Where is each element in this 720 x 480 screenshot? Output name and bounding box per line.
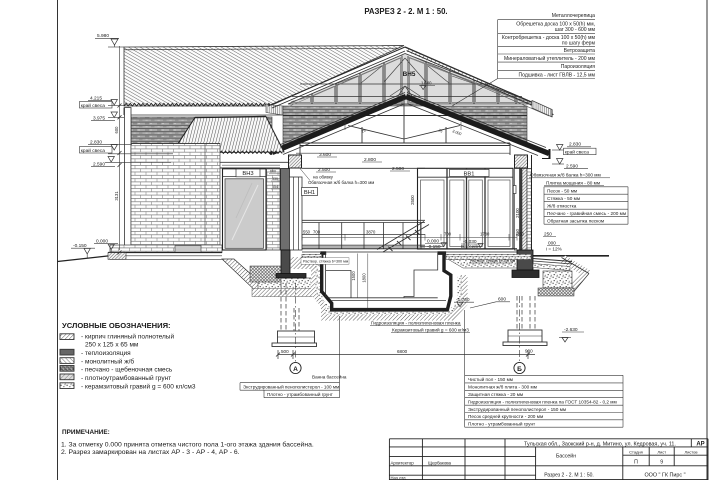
svg-text:1780: 1780	[480, 232, 490, 237]
svg-text:Ванна бассейна: Ванна бассейна	[312, 374, 347, 380]
svg-text:Металлочерепица: Металлочерепица	[552, 13, 595, 19]
svg-text:ВВ1: ВВ1	[464, 171, 475, 177]
svg-text:Гидроизоляция - полиэтиленовая: Гидроизоляция - полиэтиленовая пленка	[371, 321, 461, 326]
svg-text:Обратная засыпка песком: Обратная засыпка песком	[547, 218, 604, 223]
svg-text:1800: 1800	[362, 273, 367, 283]
svg-text:АР: АР	[696, 442, 704, 448]
svg-text:РАЗРЕЗ 2 - 2. М 1 : 50.: РАЗРЕЗ 2 - 2. М 1 : 50.	[364, 7, 447, 16]
svg-text:- керамзитовый гравий g = 600: - керамзитовый гравий g = 600 кл/см3	[81, 383, 196, 391]
svg-text:500: 500	[281, 349, 289, 354]
svg-text:600: 600	[270, 170, 276, 174]
svg-text:Чистый пол - 150 мм: Чистый пол - 150 мм	[468, 376, 513, 382]
svg-text:Разрез 2 - 2. М 1 : 50.: Разрез 2 - 2. М 1 : 50.	[544, 473, 594, 479]
svg-text:Гидроизоляция - полиэтиленовая: Гидроизоляция - полиэтиленовая пленка па…	[468, 399, 617, 404]
svg-text:ВН1: ВН1	[304, 190, 315, 196]
svg-text:330: 330	[272, 177, 278, 181]
svg-text:по шагу ферм: по шагу ферм	[562, 41, 596, 47]
svg-text:3131: 3131	[114, 191, 119, 201]
svg-text:Б: Б	[517, 366, 522, 373]
svg-text:Плотно - утрамбованный грунт: Плотно - утрамбованный грунт	[267, 391, 334, 397]
svg-text:шаг 300 - 600 мм: шаг 300 - 600 мм	[555, 27, 596, 33]
svg-text:Пароизоляция: Пароизоляция	[561, 64, 595, 70]
svg-text:700: 700	[313, 229, 321, 234]
svg-text:0.000: 0.000	[427, 239, 439, 245]
svg-text:2. Разрез замаркирован на лист: 2. Разрез замаркирован на листах АР - 3 …	[61, 449, 240, 456]
svg-text:Щербакова: Щербакова	[428, 460, 452, 465]
svg-text:250: 250	[544, 232, 552, 237]
svg-text:550: 550	[303, 229, 311, 234]
svg-text:Нач.отд.: Нач.отд.	[391, 475, 407, 480]
svg-text:700: 700	[444, 232, 452, 237]
svg-text:554: 554	[272, 185, 278, 189]
svg-text:край свеса: край свеса	[81, 147, 105, 154]
svg-text:9: 9	[660, 459, 663, 465]
svg-text:УСЛОВНЫЕ ОБОЗНАЧЕНИЯ:: УСЛОВНЫЕ ОБОЗНАЧЕНИЯ:	[62, 321, 171, 330]
svg-text:250: 250	[515, 228, 520, 236]
svg-text:Защитная стяжка - 20 мм: Защитная стяжка - 20 мм	[468, 392, 523, 397]
svg-text:ООО " ГК Пирс ": ООО " ГК Пирс "	[644, 472, 685, 478]
svg-text:2100: 2100	[515, 208, 520, 218]
svg-text:Стяжка - 50 мм: Стяжка - 50 мм	[547, 196, 580, 201]
svg-text:1. За отметку 0.000 принята от: 1. За отметку 0.000 принята отметка чист…	[61, 441, 314, 449]
svg-text:Бассейн: Бассейн	[556, 453, 576, 460]
svg-text:Обвязочная ж/б балка h=300 мм: Обвязочная ж/б балка h=300 мм	[308, 180, 374, 185]
svg-text:3870: 3870	[366, 229, 376, 234]
svg-text:Архитектор: Архитектор	[391, 460, 415, 465]
svg-text:i = 12%: i = 12%	[546, 247, 562, 252]
svg-text:6800: 6800	[397, 349, 408, 354]
svg-text:Обвязочная ж/б балка h=300 мм: Обвязочная ж/б балка h=300 мм	[530, 173, 601, 178]
svg-text:-0.150: -0.150	[427, 244, 441, 250]
svg-text:Экструдированный пенополистеро: Экструдированный пенополистерол - 100 мм	[243, 383, 339, 389]
svg-text:Тульская обл., Заокский р-н, д: Тульская обл., Заокский р-н, д. Митино, …	[524, 441, 676, 448]
svg-text:1.600: 1.600	[421, 81, 432, 86]
svg-text:на обивку: на обивку	[313, 175, 334, 180]
svg-text:1500: 1500	[351, 271, 356, 281]
svg-text:900: 900	[525, 349, 533, 354]
svg-text:Ветрозащита: Ветрозащита	[564, 48, 595, 54]
svg-text:- монолитный ж/б: - монолитный ж/б	[81, 357, 134, 365]
svg-text:Раствор. стяжка b=300 мм: Раствор. стяжка b=300 мм	[303, 260, 349, 264]
svg-text:Плотно - утрамбованный грунт: Плотно - утрамбованный грунт	[468, 421, 536, 427]
svg-text:ПРИМЕЧАНИЕ:: ПРИМЕЧАНИЕ:	[62, 429, 110, 436]
svg-text:Песчано - гравийная смесь - 20: Песчано - гравийная смесь - 200 мм	[547, 210, 626, 216]
svg-text:край свеса: край свеса	[81, 102, 105, 109]
svg-text:- песчано - щебеночная смесь: - песчано - щебеночная смесь	[81, 365, 173, 373]
svg-text:Песок средней крупности - 200: Песок средней крупности - 200 мм	[468, 413, 543, 419]
svg-text:Монолитная ж/б плита - 300 мм: Монолитная ж/б плита - 300 мм	[468, 385, 537, 390]
svg-text:Подшивка - лист ГВЛВ - 12,5 мм: Подшивка - лист ГВЛВ - 12,5 мм	[518, 73, 595, 79]
svg-text:250 х 125 х 65 мм: 250 х 125 х 65 мм	[85, 341, 139, 348]
svg-text:ВН3: ВН3	[242, 171, 253, 177]
svg-text:Лист: Лист	[657, 450, 666, 455]
svg-text:- теплоизоляция: - теплоизоляция	[81, 350, 131, 357]
svg-text:Песок - 50 мм: Песок - 50 мм	[547, 188, 577, 193]
svg-text:Плитка мощения - 80 мм: Плитка мощения - 80 мм	[546, 180, 600, 185]
svg-text:Керамзитовый гравий g = 600 кг: Керамзитовый гравий g = 600 кг/м3	[392, 327, 469, 333]
svg-text:600: 600	[114, 126, 119, 134]
svg-text:- кирпич глиняный полнотелый: - кирпич глиняный полнотелый	[81, 333, 174, 341]
svg-text:2500: 2500	[410, 195, 415, 205]
svg-text:А: А	[293, 366, 298, 373]
svg-text:П: П	[634, 459, 638, 465]
svg-text:край свеса: край свеса	[565, 149, 589, 156]
svg-text:Ж/б отмостка: Ж/б отмостка	[547, 203, 577, 208]
svg-text:Стадия: Стадия	[629, 450, 643, 455]
svg-text:ВН5: ВН5	[403, 71, 416, 78]
svg-text:Минераловатный утеплитель - 20: Минераловатный утеплитель - 200 мм	[504, 55, 595, 62]
svg-text:Раствор. стяжка b=300 мм: Раствор. стяжка b=300 мм	[470, 259, 516, 263]
svg-text:000: 000	[548, 241, 556, 246]
svg-text:- плотноутрамбованный грунт: - плотноутрамбованный грунт	[81, 374, 171, 382]
svg-text:Экструдированный пенополистеро: Экструдированный пенополистерол - 150 мм	[468, 406, 566, 412]
svg-text:Листов: Листов	[685, 450, 698, 455]
